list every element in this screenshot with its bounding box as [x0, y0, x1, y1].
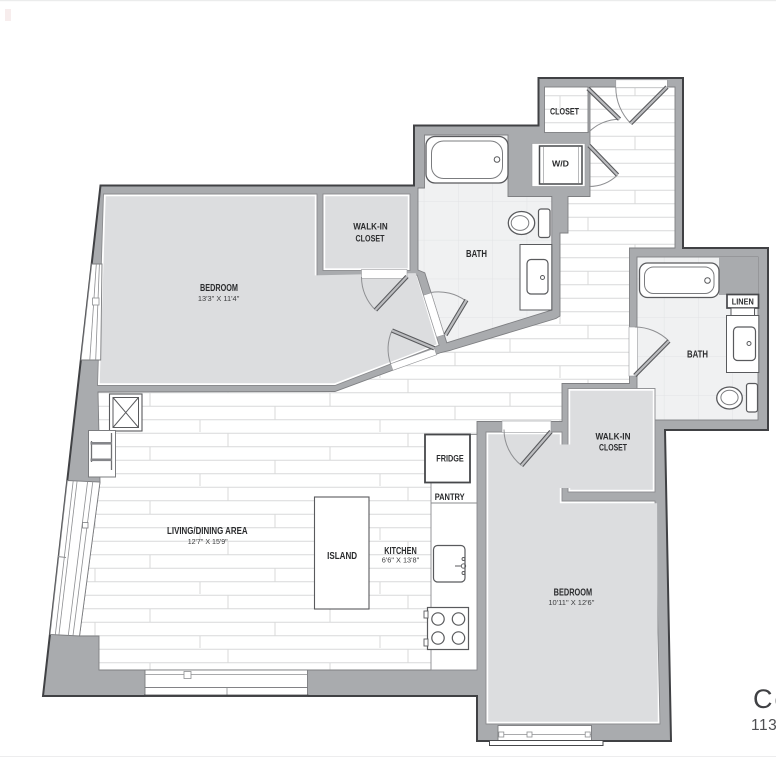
svg-text:PANTRY: PANTRY	[435, 492, 465, 502]
svg-text:BEDROOM: BEDROOM	[554, 588, 593, 599]
svg-text:FRIDGE: FRIDGE	[436, 454, 464, 464]
svg-text:BATH: BATH	[466, 249, 487, 260]
svg-text:LINEN: LINEN	[732, 298, 754, 307]
svg-text:BATH: BATH	[687, 350, 708, 361]
svg-text:Co: Co	[753, 684, 776, 714]
svg-text:6'6" X 13'8": 6'6" X 13'8"	[382, 556, 420, 565]
svg-text:CLOSET: CLOSET	[599, 443, 627, 454]
svg-text:CLOSET: CLOSET	[356, 234, 385, 245]
svg-text:W/D: W/D	[552, 159, 569, 169]
svg-text:WALK-IN: WALK-IN	[353, 222, 388, 233]
svg-text:LIVING/DINING AREA: LIVING/DINING AREA	[167, 526, 248, 537]
svg-text:ISLAND: ISLAND	[327, 551, 357, 562]
svg-text:1136: 1136	[751, 717, 776, 734]
svg-text:12'7" X 15'9": 12'7" X 15'9"	[188, 537, 228, 546]
svg-text:CLOSET: CLOSET	[550, 107, 579, 118]
svg-text:BEDROOM: BEDROOM	[200, 283, 238, 294]
svg-text:WALK-IN: WALK-IN	[596, 432, 631, 443]
svg-text:10'11" X 12'6": 10'11" X 12'6"	[548, 598, 594, 607]
svg-text:13'3" X 11'4": 13'3" X 11'4"	[198, 294, 240, 303]
